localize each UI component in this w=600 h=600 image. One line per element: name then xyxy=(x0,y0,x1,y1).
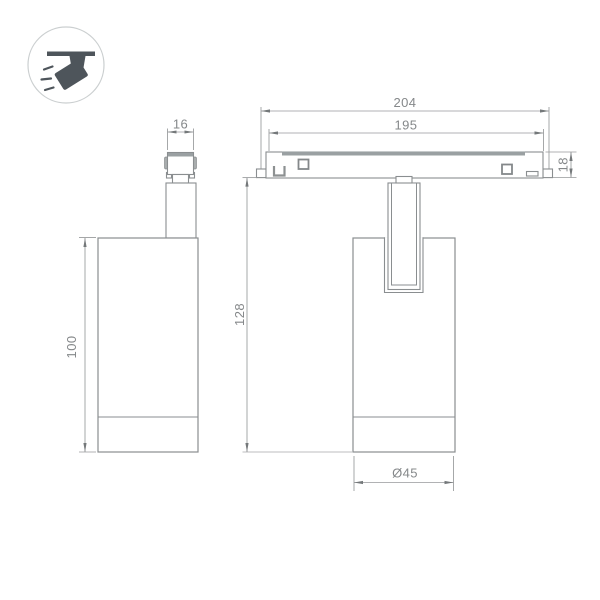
dim-label-195: 195 xyxy=(395,118,418,133)
icon-circle xyxy=(28,27,104,103)
arrowhead xyxy=(540,109,549,112)
dim-label-16: 16 xyxy=(173,117,188,132)
dim-label-d45: Ø45 xyxy=(392,466,418,481)
arrowhead xyxy=(535,131,544,134)
arrowhead xyxy=(245,178,248,187)
dim-label-128: 128 xyxy=(232,303,247,326)
front-body xyxy=(353,177,455,453)
arrowhead xyxy=(445,481,454,484)
dim-label-18: 18 xyxy=(556,157,571,172)
dimension-track-inner: 195 xyxy=(269,118,544,152)
dimension-overall-height: 128 xyxy=(232,178,352,452)
track-profile xyxy=(257,152,553,179)
front-view: 204 195 18 xyxy=(232,95,577,491)
track-top-bar xyxy=(282,152,525,156)
technical-drawing: 16 100 xyxy=(0,0,600,600)
dim-label-204: 204 xyxy=(394,95,417,110)
dimension-connector-width: 16 xyxy=(168,117,194,151)
track-hole-left xyxy=(299,160,309,170)
yoke-inner-arm xyxy=(392,183,417,285)
dimension-body-height: 100 xyxy=(64,238,96,452)
icon-ceiling-bar xyxy=(47,52,95,57)
arrowhead xyxy=(261,109,270,112)
track-slot xyxy=(527,172,539,177)
arrowhead xyxy=(83,238,86,247)
side-body xyxy=(98,238,198,452)
dim-label-100: 100 xyxy=(64,336,79,359)
dimension-body-diameter: Ø45 xyxy=(354,456,454,491)
arm-cap xyxy=(396,177,412,184)
track-left-tab xyxy=(257,169,267,178)
track-spotlight-icon xyxy=(28,27,104,103)
arrowhead xyxy=(269,131,278,134)
arrowhead xyxy=(245,443,248,452)
drawing-canvas: 16 100 xyxy=(0,0,600,600)
side-arm xyxy=(166,183,196,238)
arrowhead xyxy=(83,443,86,452)
side-view: 16 100 xyxy=(64,117,198,453)
side-track-adapter xyxy=(165,153,197,184)
side-adapter-neck xyxy=(173,175,189,184)
track-right-tab xyxy=(543,169,553,178)
track-hole-right xyxy=(502,165,512,175)
arrowhead xyxy=(354,481,363,484)
